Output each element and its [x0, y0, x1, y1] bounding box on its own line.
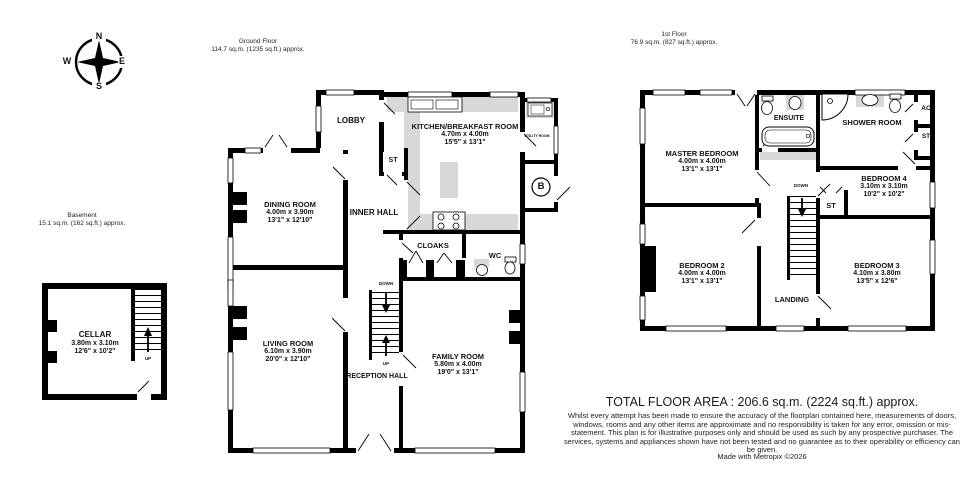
- stairs-up-label-ground: UP: [383, 361, 389, 366]
- ground-staircase: [372, 292, 399, 358]
- ensuite-toilet-icon: [762, 96, 774, 115]
- floor-area: 114.7 sq.m. (1235 sq.ft.) approx.: [211, 46, 304, 54]
- ensuite-basin-icon: [789, 97, 801, 110]
- room-label-st-landing: ST: [826, 201, 836, 210]
- wc-toilet-icon: [505, 257, 516, 274]
- room-label-lobby: LOBBY: [337, 116, 365, 126]
- room-label-living: LIVING ROOM 6.10m x 3.90m 20'0" x 12'10": [263, 339, 313, 365]
- metropix-credit: Made with Metropix ©2026: [717, 452, 806, 461]
- compass-north-label: N: [95, 32, 104, 41]
- wc-basin-icon: [477, 265, 488, 276]
- shower-icon: [822, 94, 848, 120]
- disclaimer-text: Whilst every attempt has been made to en…: [562, 412, 962, 455]
- room-label-utility: UTILITY ROOM: [524, 134, 549, 138]
- floorplan-page: N E S W Ground Floor 114.7 sq.m. (1235 s…: [0, 0, 980, 495]
- stairs-up-label-cellar: UP: [145, 356, 151, 361]
- bath-icon: [762, 127, 814, 146]
- room-label-bedroom4: BEDROOM 4 3.10m x 3.10m 10'2" x 10'2": [860, 174, 907, 200]
- room-label-st-ground: ST: [389, 157, 398, 165]
- basement-title: Basement 15.1 sq.m. (162 sq.ft.) approx.: [39, 212, 126, 229]
- floor-name: 1st Floor: [631, 31, 718, 39]
- room-label-shower: SHOWER ROOM: [842, 118, 901, 127]
- room-label-family: FAMILY ROOM 5.80m x 4.00m 19'0" x 13'1": [432, 352, 484, 378]
- compass-west-label: W: [62, 57, 73, 66]
- shower-basin-icon: [862, 95, 878, 106]
- room-label-reception-hall: RECEPTION HALL: [346, 373, 407, 381]
- stairs-down-label-ground: DOWN: [379, 281, 393, 286]
- room-label-landing: LANDING: [775, 295, 809, 304]
- floor-name: Ground Floor: [211, 38, 304, 46]
- room-label-dining: DINING ROOM 4.00m x 3.90m 13'1" x 12'10": [264, 200, 316, 226]
- room-label-ac: AC: [921, 105, 930, 113]
- first-floor-title: 1st Floor 76.9 sq.m. (827 sq.ft.) approx…: [631, 31, 718, 48]
- compass-south-label: S: [95, 82, 103, 91]
- room-label-cellar: CELLAR 3.80m x 3.10m 12'6" x 10'2": [71, 330, 118, 356]
- room-label-bedroom3: BEDROOM 3 4.10m x 3.80m 13'5" x 12'6": [853, 261, 900, 287]
- hob-icon: [433, 212, 465, 230]
- room-label-st-airing: ST: [922, 133, 930, 141]
- boiler-label: B: [538, 181, 545, 192]
- stairs-down-label-first: DOWN: [794, 183, 808, 188]
- compass-east-label: E: [118, 57, 126, 66]
- first-staircase: [790, 196, 816, 276]
- room-label-cloaks: CLOAKS: [417, 241, 449, 250]
- ground-floor-plan: [228, 90, 570, 453]
- room-label-bedroom2: BEDROOM 2 4.00m x 4.00m 13'1" x 13'1": [678, 261, 725, 287]
- room-label-inner-hall: INNER HALL: [350, 208, 398, 218]
- utility-sink-icon: [528, 103, 552, 116]
- room-label-ensuite: ENSUITE: [774, 115, 804, 123]
- shower-toilet-icon: [890, 94, 902, 113]
- floor-name: Basement: [39, 212, 126, 220]
- room-label-kitchen: KITCHEN/BREAKFAST ROOM 4.70m x 4.00m 15'…: [412, 122, 519, 148]
- room-label-master: MASTER BEDROOM 4.00m x 4.00m 13'1" x 13'…: [666, 149, 739, 175]
- kitchen-sink-icon: [408, 97, 462, 112]
- floor-area: 76.9 sq.m. (827 sq.ft.) approx.: [631, 39, 718, 47]
- room-label-wc: WC: [489, 251, 502, 260]
- total-floor-area: TOTAL FLOOR AREA : 206.6 sq.m. (2224 sq.…: [606, 395, 918, 409]
- cellar-staircase: [135, 289, 161, 353]
- ground-floor-title: Ground Floor 114.7 sq.m. (1235 sq.ft.) a…: [211, 38, 304, 55]
- floor-area: 15.1 sq.m. (162 sq.ft.) approx.: [39, 220, 126, 228]
